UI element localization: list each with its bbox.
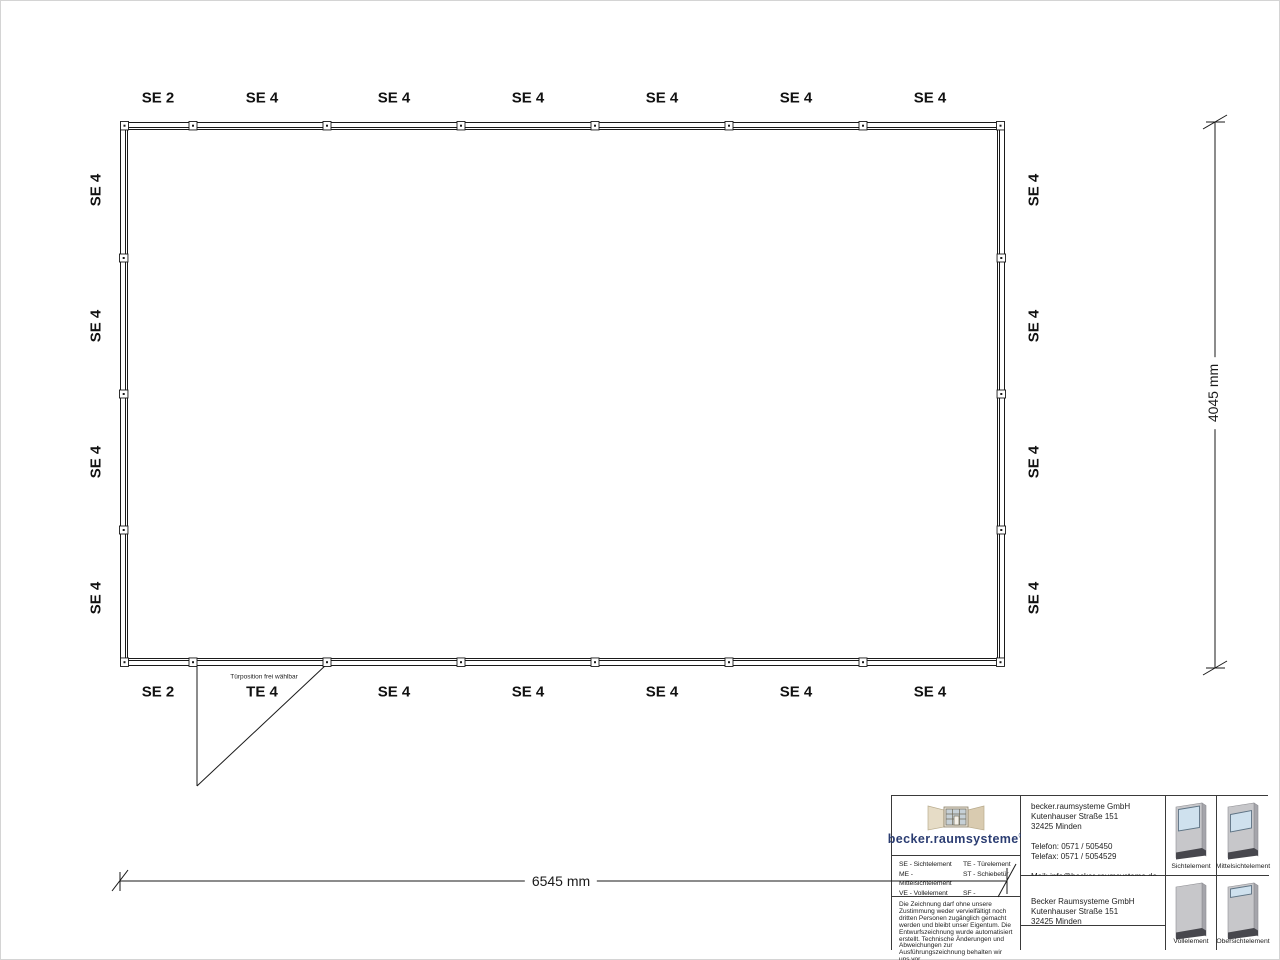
vollelement-label: Vollelement — [1173, 938, 1208, 945]
right-wall-label-2: SE 4 — [1026, 310, 1043, 343]
becker-logo-sketch-icon — [927, 799, 985, 831]
bottom-wall-label-2: TE 4 — [246, 684, 278, 701]
width-dimension-label: 6545 mm — [525, 873, 597, 889]
bottom-wall-label-1: SE 2 — [142, 684, 175, 701]
left-wall — [121, 123, 128, 666]
bottom-wall-label-5: SE 4 — [646, 684, 679, 701]
left-wall-label-4: SE 4 — [88, 582, 105, 615]
height-dimension-label: 4045 mm — [1205, 357, 1221, 429]
legend-te: TE - Türelement — [963, 860, 1020, 870]
obersichtelement-cell: Obersichtelement — [1217, 876, 1269, 950]
top-wall-label-6: SE 4 — [780, 90, 813, 107]
manufacturer-cell: Becker Raumsysteme GmbH Kutenhauser Stra… — [1021, 876, 1166, 926]
obersichtelement-icon — [1221, 880, 1265, 944]
contact-company: becker.raumsysteme GmbH — [1031, 802, 1165, 812]
top-wall — [121, 123, 1005, 130]
contact-street: Kutenhauser Straße 151 — [1031, 812, 1165, 822]
vollelement-icon — [1169, 880, 1213, 944]
top-wall-label-7: SE 4 — [914, 90, 947, 107]
legend-me: ME - Mittelsichtelement — [899, 870, 963, 889]
wall-posts — [119, 121, 1005, 666]
legend-st: ST - Schiebetür — [963, 870, 1020, 889]
title-block: becker.raumsysteme® SE - Sichtelement TE… — [891, 795, 1268, 950]
empty-cell — [1021, 926, 1166, 950]
bottom-wall-label-6: SE 4 — [780, 684, 813, 701]
left-wall-label-1: SE 4 — [88, 174, 105, 207]
contact-cell: becker.raumsysteme GmbH Kutenhauser Stra… — [1021, 796, 1166, 876]
top-wall-label-2: SE 4 — [246, 90, 279, 107]
bottom-wall-label-7: SE 4 — [914, 684, 947, 701]
bottom-wall-label-3: SE 4 — [378, 684, 411, 701]
disclaimer-text: Die Zeichnung darf ohne unsere Zustimmun… — [892, 897, 1020, 960]
disclaimer-cell: Die Zeichnung darf ohne unsere Zustimmun… — [892, 897, 1021, 950]
top-wall-label-4: SE 4 — [512, 90, 545, 107]
mittelsichtelement-label: Mittelsichtelement — [1216, 863, 1270, 870]
legend-se: SE - Sichtelement — [899, 860, 963, 870]
door-leaf-line — [197, 664, 327, 786]
vollelement-cell: Vollelement — [1166, 876, 1217, 950]
right-wall-label-4: SE 4 — [1026, 582, 1043, 615]
door-position-note: Türposition frei wählbar — [230, 674, 298, 681]
mittelsichtelement-icon — [1221, 800, 1265, 864]
sichtelement-icon — [1169, 800, 1213, 864]
right-wall-label-1: SE 4 — [1026, 174, 1043, 207]
contact-phone: Telefon: 0571 / 505450 — [1031, 842, 1165, 852]
top-wall-label-3: SE 4 — [378, 90, 411, 107]
logo-cell: becker.raumsysteme® — [892, 796, 1021, 856]
obersichtelement-label: Obersichtelement — [1216, 938, 1269, 945]
contact-fax: Telefax: 0571 / 5054529 — [1031, 852, 1165, 862]
drawing-page: becker.raumsysteme® SE - Sichtelement TE… — [0, 0, 1280, 960]
mittelsichtelement-cell: Mittelsichtelement — [1217, 796, 1269, 876]
sichtelement-label: Sichtelement — [1171, 863, 1210, 870]
top-wall-label-5: SE 4 — [646, 90, 679, 107]
manufacturer-street: Kutenhauser Straße 151 — [1031, 907, 1165, 917]
logo-text: becker.raumsysteme® — [888, 832, 1024, 846]
contact-city: 32425 Minden — [1031, 822, 1165, 832]
top-wall-label-1: SE 2 — [142, 90, 175, 107]
right-wall-label-3: SE 4 — [1026, 446, 1043, 479]
right-wall — [998, 123, 1005, 666]
manufacturer-company: Becker Raumsysteme GmbH — [1031, 897, 1165, 907]
bottom-wall — [121, 659, 1005, 666]
left-wall-label-2: SE 4 — [88, 310, 105, 343]
bottom-wall-label-4: SE 4 — [512, 684, 545, 701]
sichtelement-cell: Sichtelement — [1166, 796, 1217, 876]
legend-cell: SE - Sichtelement TE - Türelement ME - M… — [892, 856, 1021, 897]
left-wall-label-3: SE 4 — [88, 446, 105, 479]
